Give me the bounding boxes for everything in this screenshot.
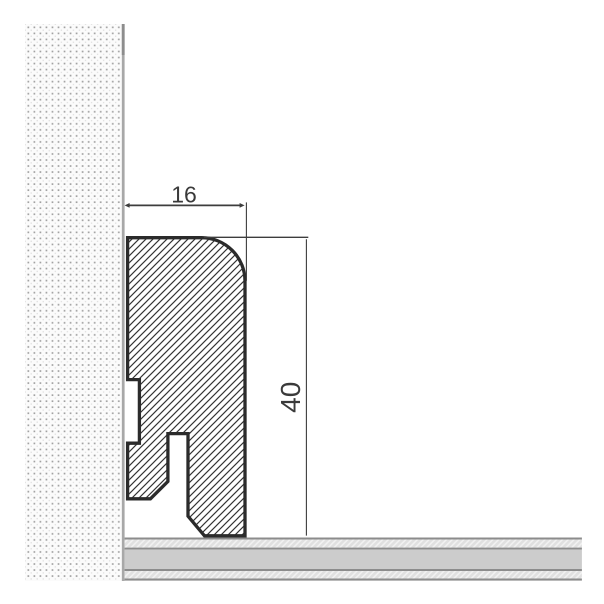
svg-text:16: 16 <box>171 182 197 208</box>
svg-text:40: 40 <box>275 382 306 413</box>
